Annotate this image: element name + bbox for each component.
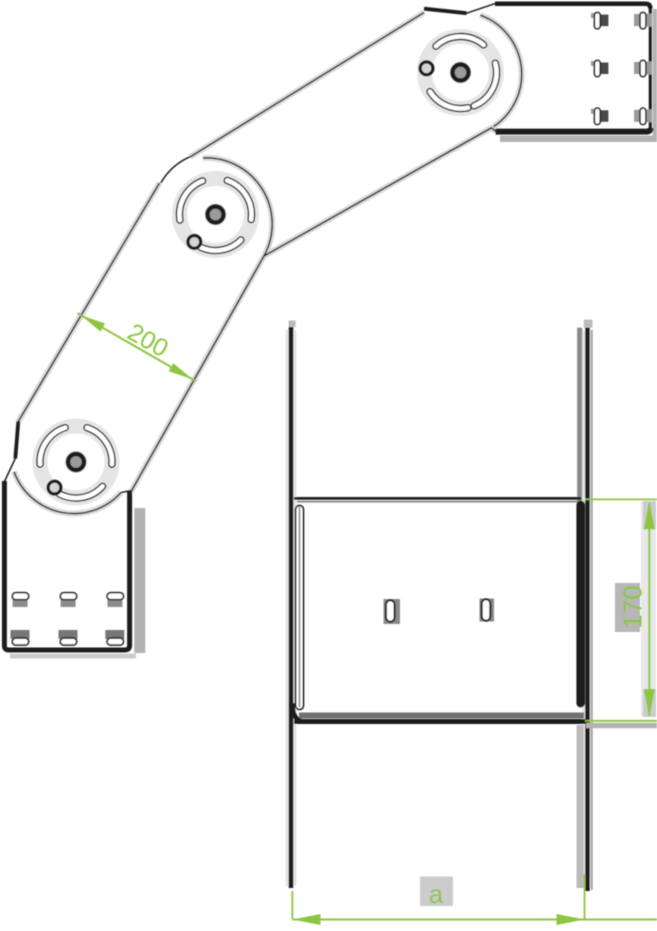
svg-text:200: 200 [123, 318, 173, 363]
svg-text:a: a [429, 879, 444, 909]
svg-text:170: 170 [618, 585, 648, 628]
